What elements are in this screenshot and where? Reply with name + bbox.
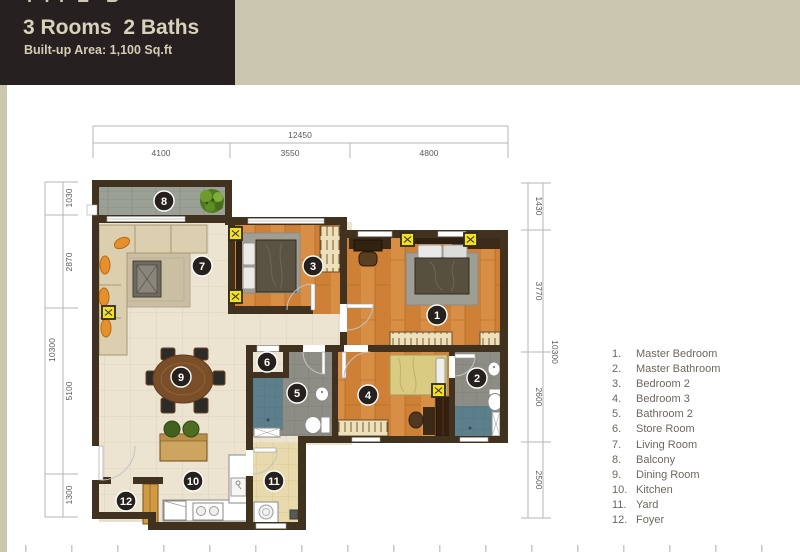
window (358, 232, 392, 237)
legend-number: 12. (612, 513, 636, 528)
legend-item: 9.Dining Room (612, 468, 792, 483)
legend-item: 8.Balcony (612, 453, 792, 468)
dim-left-seg3: 5100 (64, 381, 74, 400)
headboard (413, 237, 471, 244)
svg-text:9: 9 (178, 372, 184, 384)
legend-number: 9. (612, 468, 636, 483)
svg-text:6: 6 (264, 357, 270, 369)
room-badge-3: 3 (303, 256, 323, 276)
legend-item: 4.Bedroom 3 (612, 392, 792, 407)
legend-number: 1. (612, 347, 636, 362)
plant-icon (183, 421, 199, 437)
ceiling-light-icon (401, 233, 414, 246)
legend-item: 11.Yard (612, 498, 792, 513)
dim-top-seg2: 3550 (281, 148, 300, 158)
legend-label: Dining Room (636, 468, 700, 483)
page-title: 3 Rooms 2 Baths (23, 16, 199, 40)
svg-text:8: 8 (161, 196, 167, 208)
ceiling-light-icon (102, 306, 115, 319)
legend-number: 3. (612, 377, 636, 392)
pillow (243, 267, 255, 289)
dim-left-seg2: 2870 (64, 252, 74, 271)
bed (415, 258, 469, 294)
legend-label: Balcony (636, 453, 675, 468)
legend-label: Bedroom 2 (636, 377, 690, 392)
legend-item: 2.Master Bathroom (612, 362, 792, 377)
balcony-plant-icon (200, 189, 224, 213)
room-legend: 1.Master Bedroom 2.Master Bathroom 3.Bed… (612, 347, 792, 528)
legend-item: 10.Kitchen (612, 483, 792, 498)
room-badge-1: 1 (427, 305, 447, 325)
window (256, 524, 286, 529)
dim-left-total: 10300 (47, 338, 57, 362)
room-badge-5: 5 (287, 383, 307, 403)
bedroom2-door (311, 284, 315, 310)
dim-top-seg1: 4100 (152, 148, 171, 158)
legend-number: 5. (612, 407, 636, 422)
pillow (418, 245, 442, 258)
legend-number: 7. (612, 438, 636, 453)
bottom-ruler-ticks (25, 545, 790, 552)
utility-box (87, 205, 97, 215)
desk-chair (409, 412, 423, 428)
legend-item: 6.Store Room (612, 422, 792, 437)
legend-number: 6. (612, 422, 636, 437)
dim-left-seg1: 1030 (64, 188, 74, 207)
legend-item: 12.Foyer (612, 513, 792, 528)
wardrobe (338, 420, 388, 436)
ceiling-light-icon (229, 290, 242, 303)
desk (423, 407, 435, 435)
room-badge-9: 9 (171, 367, 191, 387)
svg-text:12: 12 (120, 496, 132, 508)
legend-number: 8. (612, 453, 636, 468)
svg-text:7: 7 (199, 261, 205, 273)
master-door (347, 304, 373, 308)
dimension-right: 1430 3770 2600 2500 10300 (521, 183, 560, 518)
svg-text:11: 11 (268, 476, 280, 488)
bathroom2-shower (253, 378, 283, 430)
window (460, 438, 488, 442)
svg-text:3: 3 (310, 261, 316, 273)
dim-top-seg3: 4800 (420, 148, 439, 158)
dim-right-seg1: 1430 (534, 197, 544, 216)
dim-top-total: 12450 (288, 130, 312, 140)
legend-item: 3.Bedroom 2 (612, 377, 792, 392)
entry-door (99, 446, 103, 480)
ceiling-light-icon (229, 227, 242, 240)
page: 12450 4100 3550 4800 10300 1030 2870 510… (0, 0, 800, 552)
svg-text:5: 5 (294, 388, 300, 400)
room-badge-10: 10 (183, 471, 203, 491)
sink-icon (488, 362, 500, 376)
legend-label: Bathroom 2 (636, 407, 693, 422)
svg-text:1: 1 (434, 310, 440, 322)
dimension-left: 10300 1030 2870 5100 1300 (45, 182, 78, 517)
room-badge-4: 4 (358, 385, 378, 405)
master-shower (455, 406, 492, 436)
svg-text:10: 10 (187, 476, 199, 488)
pillow (99, 288, 109, 306)
svg-text:2: 2 (474, 373, 480, 385)
legend-label: Yard (636, 498, 658, 513)
ceiling-light-icon (464, 233, 477, 246)
sink-icon (316, 387, 329, 401)
toilet-icon (321, 417, 330, 433)
window (438, 232, 466, 237)
svg-text:4: 4 (365, 390, 372, 402)
room-badge-12: 12 (116, 491, 136, 511)
pillow (100, 256, 110, 274)
legend-label: Store Room (636, 422, 695, 437)
unit-type-label: TYPE B (24, 0, 125, 7)
pillow (443, 245, 467, 258)
room-badge-2: 2 (467, 368, 487, 388)
legend-number: 10. (612, 483, 636, 498)
headboard (236, 239, 242, 293)
desk-chair (359, 252, 377, 266)
plant-icon (164, 421, 180, 437)
bathroom2-door (322, 352, 325, 374)
legend-number: 11. (612, 498, 636, 513)
dim-right-seg4: 2500 (534, 471, 544, 490)
built-up-area: Built-up Area: 1,100 Sq.ft (24, 43, 172, 57)
room-badge-7: 7 (192, 256, 212, 276)
bed (256, 240, 296, 292)
ceiling-light-icon (432, 384, 445, 397)
title-block: TYPE B 3 Rooms 2 Baths Built-up Area: 1,… (0, 0, 235, 85)
room-badge-11: 11 (264, 471, 284, 491)
legend-label: Kitchen (636, 483, 673, 498)
legend-item: 1.Master Bedroom (612, 347, 792, 362)
dim-right-total: 10300 (550, 340, 560, 364)
legend-item: 5.Bathroom 2 (612, 407, 792, 422)
legend-label: Living Room (636, 438, 697, 453)
legend-number: 2. (612, 362, 636, 377)
window (352, 438, 380, 442)
room-badge-6: 6 (257, 352, 277, 372)
yard-door (254, 448, 276, 452)
legend-item: 7.Living Room (612, 438, 792, 453)
dim-right-seg2: 3770 (534, 282, 544, 301)
legend-number: 4. (612, 392, 636, 407)
store-door (257, 346, 279, 352)
pillow (243, 243, 255, 265)
dim-right-seg3: 2600 (534, 388, 544, 407)
desk (354, 240, 382, 251)
master-bath-door (455, 354, 475, 358)
chair (213, 371, 225, 385)
pillow (101, 319, 111, 337)
room-badge-8: 8 (154, 191, 174, 211)
legend-label: Master Bathroom (636, 362, 720, 377)
legend-label: Master Bedroom (636, 347, 717, 362)
legend-label: Foyer (636, 513, 664, 528)
dim-left-seg4: 1300 (64, 485, 74, 504)
legend-label: Bedroom 3 (636, 392, 690, 407)
dimension-top: 12450 4100 3550 4800 (93, 126, 508, 158)
